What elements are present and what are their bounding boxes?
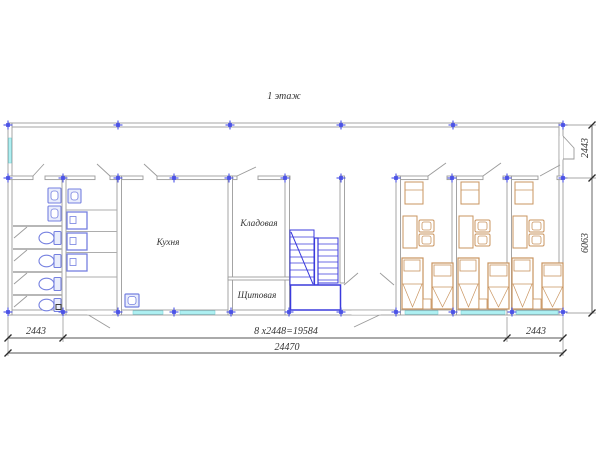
bedroom-furniture xyxy=(512,182,563,309)
stair-landing xyxy=(291,285,341,310)
bedroom2-door xyxy=(483,163,501,176)
dim-side-top: 2443 xyxy=(580,138,591,158)
bedroom1-left-wall xyxy=(396,176,401,315)
shower-icon xyxy=(67,254,87,271)
bedroom-furniture xyxy=(402,182,453,309)
bedroom-unit-1 xyxy=(402,182,453,309)
exterior-wall-top xyxy=(8,123,563,127)
window-bedroom-2 xyxy=(461,311,505,314)
washroom xyxy=(13,188,62,312)
shower-icon xyxy=(67,233,87,250)
room-label-storage: Кладовая xyxy=(239,218,277,229)
sink-icon xyxy=(48,188,61,203)
stair-cut-line xyxy=(291,232,313,284)
storage-left-wall xyxy=(228,176,233,315)
shower-icon xyxy=(67,212,87,229)
stair-hall-door xyxy=(344,273,358,285)
bedroom3-door xyxy=(540,165,560,176)
dim-bottom-center: 8 х2448=19584 xyxy=(254,326,318,337)
dim-bottom-left: 2443 xyxy=(26,326,46,337)
bedroom-unit-2 xyxy=(458,182,509,309)
dim-bottom-total: 24470 xyxy=(275,342,300,353)
storage-door xyxy=(237,167,256,176)
toilet-icon xyxy=(39,232,61,245)
staircase xyxy=(290,230,341,310)
bedroom-unit-3 xyxy=(512,182,563,309)
entrance-door-left xyxy=(89,315,111,328)
stair-stringer xyxy=(315,238,319,285)
window-left xyxy=(9,138,12,163)
bedroom-furniture xyxy=(458,182,509,309)
washroom-divider-wall xyxy=(62,176,66,315)
room-label-kitchen: Кухня xyxy=(156,238,180,248)
hall-door xyxy=(380,273,394,285)
window-kitchen-1 xyxy=(133,311,163,314)
toilet-icon xyxy=(39,255,61,268)
floor-plan-drawing: Кухня Кладовая Щитовая xyxy=(0,0,600,449)
kitchen-room: Кухня xyxy=(125,238,179,307)
entrance-door-right xyxy=(563,136,574,159)
washroom-door xyxy=(33,164,44,176)
window-bedroom-1 xyxy=(405,311,438,314)
stair-right-wall xyxy=(340,176,345,283)
kitchen-left-wall xyxy=(117,176,122,315)
bedroom1-door xyxy=(428,163,446,176)
sink-icon xyxy=(48,206,61,221)
window-bedroom-3 xyxy=(516,311,558,314)
toilet-icon xyxy=(39,278,61,291)
floor-plan-canvas: Кухня Кладовая Щитовая xyxy=(0,0,600,449)
shower-room xyxy=(66,189,117,277)
room-label-electrical: Щитовая xyxy=(237,291,277,301)
vestibule-door xyxy=(97,164,110,176)
dim-bottom-right: 2443 xyxy=(526,326,546,337)
page-title: 1 этаж xyxy=(267,91,301,102)
window-kitchen-2 xyxy=(180,311,215,314)
storage-right-wall xyxy=(285,176,290,315)
storage-electrical-divider xyxy=(228,277,290,280)
entrance-door-center xyxy=(354,315,380,327)
kitchen-door xyxy=(144,164,157,176)
sink-icon xyxy=(68,189,81,203)
dim-side-main: 6063 xyxy=(580,233,591,253)
sink-icon xyxy=(125,294,139,307)
